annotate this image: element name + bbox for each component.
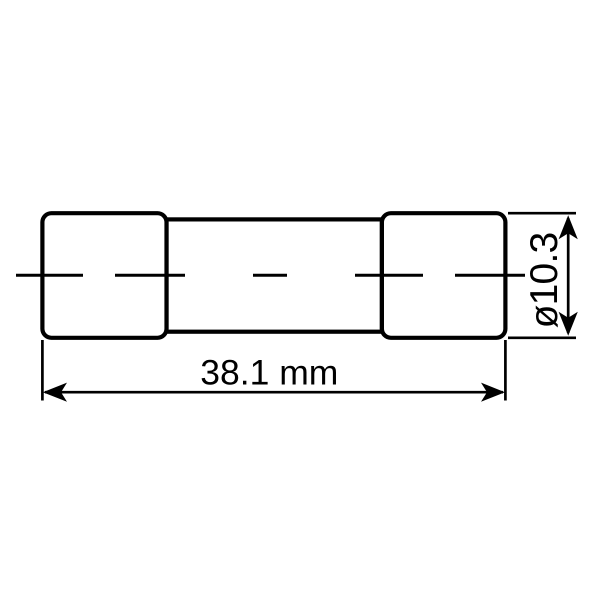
- svg-text:38.1 mm: 38.1 mm: [200, 353, 338, 393]
- svg-text:ø10.3: ø10.3: [523, 233, 566, 329]
